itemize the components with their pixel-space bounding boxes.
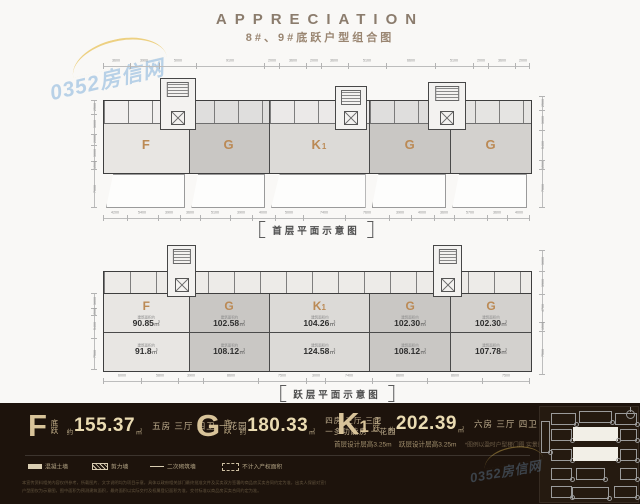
dimension-segment: 4200	[103, 212, 127, 222]
dimension-segment: 7500	[482, 375, 530, 385]
area-upper: 104.26㎡	[270, 319, 370, 330]
area-upper: 102.30㎡	[370, 319, 450, 330]
dimension-label: 4700	[541, 304, 545, 312]
area-note: 建筑面积约	[209, 345, 248, 348]
dimension-segment: 3000	[306, 375, 325, 385]
dimension-label: 3900	[541, 279, 545, 287]
dimension-segment: 7500	[536, 331, 546, 375]
dimension-segment: 5800	[141, 375, 178, 385]
plan2-unit-g1: G 建筑面积约 102.58㎡ 建筑面积约 108.12㎡	[189, 294, 269, 371]
legend-label: 剪力墙	[111, 463, 128, 471]
wall-legend: 混凝土墙 剪力墙 二次砌筑墙 不计入产权面积	[28, 461, 298, 472]
plan1-ruler-top: 3600390050009100200036002000360051006600…	[103, 60, 530, 70]
dimension-label: 2000	[519, 58, 527, 62]
dimension-segment: 5100	[200, 212, 229, 222]
dimension-segment: 6600	[386, 60, 435, 70]
area-note: 建筑面积约	[390, 345, 430, 348]
dimension-segment: 4700	[536, 294, 546, 322]
dimension-segment: 3900	[389, 212, 411, 222]
dimension-segment: 8600	[427, 375, 482, 385]
dimension-segment: 5400	[536, 130, 546, 160]
dimension-segment: 2000	[264, 60, 279, 70]
site-keyplan	[539, 406, 639, 503]
plan2-stair-core-1	[167, 245, 196, 297]
dimension-label: 3600	[541, 116, 545, 124]
terrace	[372, 174, 447, 208]
dimension-segment: 1500	[536, 322, 546, 331]
elevator-icon	[344, 111, 358, 125]
unit-label: F	[142, 137, 151, 152]
keyplan-building	[620, 449, 637, 461]
keyplan-highlighted-building	[573, 427, 618, 441]
area-lower: 91.8㎡	[104, 347, 189, 358]
dimension-segment: 3900	[130, 60, 159, 70]
floor-height-note: 首层设计层高3.25m 跃层设计层高3.25m *图例以盈时户型楼门图 实景量为…	[334, 440, 555, 449]
dimension-segment: 7000	[88, 169, 98, 208]
dimension-label: 2500	[93, 103, 97, 111]
dimension-segment: 3600	[88, 114, 98, 134]
dimension-label: 5100	[363, 58, 371, 62]
dimension-label: 3600	[498, 58, 506, 62]
dimension-segment: 9100	[196, 60, 264, 70]
dimension-label: 5100	[211, 210, 219, 214]
area-note: 建筑面积约	[390, 317, 430, 320]
dimension-label: 5400	[138, 210, 146, 214]
unit-label: G	[485, 137, 496, 152]
loft-floor-height: 跃层设计层高3.25m	[399, 441, 457, 448]
dimension-label: 7500	[93, 350, 97, 358]
dimension-segment: 6000	[103, 375, 141, 385]
plan1-terrace-row	[103, 173, 530, 209]
area-note: 建筑面积约	[294, 317, 344, 320]
dimension-label: 2000	[477, 58, 485, 62]
area-note: 建筑面积约	[471, 345, 511, 348]
keyplan-building	[551, 429, 572, 441]
disclaimer-line-1: 本宣传资料相关内容仅供参考，所载图片、文字说明均为项目示意，具体以政府相关部门最…	[22, 480, 326, 486]
dimension-label: 3600	[541, 257, 545, 265]
area-lower: 107.78㎡	[451, 347, 531, 358]
area-upper: 102.58㎡	[190, 319, 269, 330]
dimension-label: 6000	[118, 373, 126, 377]
plan2-unit-f: F 建筑面积约 90.85㎡ 建筑面积约 91.8㎡	[104, 294, 189, 371]
unit-label-sub: 1	[322, 142, 327, 151]
dimension-segment: 3600	[279, 60, 306, 70]
dimension-label: 7000	[541, 184, 545, 192]
stair-icon	[341, 90, 361, 105]
disclaimer-line-2: 户型图仅为示意图，图中面积为预测建筑面积，最终面积以实际交付及权属登记面积为准，…	[22, 488, 326, 494]
unit-tier: 底跃	[223, 419, 231, 434]
plan1-caption-text: 首层平面示意图	[272, 223, 360, 237]
legend-label: 不计入产权面积	[242, 463, 282, 471]
unit-label: G	[224, 299, 233, 313]
dimension-label: 3600	[93, 120, 97, 128]
dimension-label: 1500	[541, 161, 545, 169]
floor-divider	[370, 332, 450, 333]
page-title: APPRECIATION	[0, 11, 640, 28]
dimension-segment: 2500	[88, 100, 98, 114]
floor-divider	[190, 332, 269, 333]
dimension-segment: 8600	[372, 375, 427, 385]
first-floor-height: 首层设计层高3.25m	[334, 441, 392, 448]
dimension-segment: 5700	[454, 212, 487, 222]
dimension-segment: 1500	[536, 160, 546, 168]
dimension-segment: 3900	[230, 212, 252, 222]
watermark-text: 0352房信网	[47, 50, 173, 107]
legend-item-nonproperty: 不计入产权面积	[222, 461, 298, 472]
dimension-label: 3900	[140, 58, 148, 62]
plan1-stair-core-1	[160, 78, 196, 130]
unit-letter: G	[196, 411, 220, 441]
dimension-label: 3900	[187, 373, 195, 377]
approx-label: 约	[67, 428, 73, 440]
area-lower: 124.58㎡	[270, 347, 370, 358]
dimension-segment: 5400	[127, 212, 158, 222]
unit-tier: 底跃	[372, 417, 380, 432]
dimension-label: 3900	[396, 210, 404, 214]
area-note: 建筑面积约	[125, 345, 167, 348]
dimension-label: 3600	[330, 58, 338, 62]
line-wall-icon	[150, 466, 164, 467]
legend-label: 二次砌筑墙	[167, 463, 196, 471]
dimension-segment: 3600	[488, 60, 515, 70]
keyplan-building	[576, 468, 605, 480]
footer-divider	[25, 455, 530, 456]
stair-icon	[435, 86, 459, 101]
dimension-label: 5700	[466, 210, 474, 214]
plan2-unit-k1: K1 建筑面积约 104.26㎡ 建筑面积约 124.58㎡	[269, 294, 370, 371]
dimension-label: 2000	[268, 58, 276, 62]
dimension-segment: 3900	[536, 271, 546, 294]
dimension-segment: 3900	[178, 375, 203, 385]
hatch-wall-icon	[92, 463, 108, 470]
page: APPRECIATION 8#、9#底跃户型组合图 0352房信网 360039…	[0, 0, 640, 504]
plan2-ruler-right: 36003900470015007500	[536, 250, 546, 375]
dimension-segment: 5000	[159, 60, 196, 70]
dimension-label: 5000	[285, 210, 293, 214]
dimension-segment: 5400	[88, 315, 98, 338]
dimension-label: 5800	[156, 373, 164, 377]
dimension-segment: 3600	[487, 212, 508, 222]
keyplan-highlighted-building	[573, 447, 618, 461]
dimension-segment: 4000	[507, 212, 530, 222]
unit-label-sub: 1	[321, 303, 325, 312]
unit-area-sqm: ㎡	[136, 428, 142, 440]
dimension-label: 5000	[174, 58, 182, 62]
approx-label: 约	[240, 428, 246, 440]
dimension-segment: 3000	[88, 145, 98, 162]
dimension-segment: 7500	[258, 375, 306, 385]
dimension-label: 3000	[312, 373, 320, 377]
area-note: 建筑面积约	[209, 317, 248, 320]
dimension-label: 4000	[515, 210, 523, 214]
plan2-ruler-left: 3600150054007500	[88, 293, 98, 370]
solid-wall-icon	[28, 464, 42, 469]
footer-unit-k1: K 1 底跃 约 202.39 ㎡ 六房 三厅 四卫 一花园	[337, 409, 570, 439]
dimension-label: 2000	[310, 58, 318, 62]
unit-area: 180.33	[247, 415, 308, 437]
legend-item-shear: 剪力墙	[92, 461, 135, 472]
dimension-segment: 7000	[536, 169, 546, 208]
dimension-label: 3600	[112, 58, 120, 62]
dimension-label: 7600	[363, 210, 371, 214]
floor-divider	[451, 332, 531, 333]
area-note: 建筑面积约	[471, 317, 511, 320]
keyplan-building	[551, 486, 572, 498]
plan1-unit-g1: G	[189, 101, 269, 173]
dimension-segment: 3600	[536, 110, 546, 130]
keyplan-building	[551, 468, 572, 480]
stair-icon	[167, 82, 189, 97]
plan2-unit-g3: G 建筑面积约 102.30㎡ 建筑面积约 107.78㎡	[450, 294, 531, 371]
dimension-label: 1500	[93, 161, 97, 169]
unit-label: G	[486, 299, 495, 313]
unit-label: G	[224, 137, 235, 152]
area-lower: 108.12㎡	[190, 347, 269, 358]
plan1-stair-core-2	[335, 86, 367, 130]
dimension-label: 7000	[93, 185, 97, 193]
unit-label: G	[405, 137, 416, 152]
dimension-segment: 8600	[203, 375, 258, 385]
elevator-icon	[175, 278, 189, 292]
terrace	[452, 174, 527, 208]
unit-area-sqm: ㎡	[309, 428, 315, 440]
dimension-segment: 4000	[411, 212, 434, 222]
dimension-label: 2500	[541, 99, 545, 107]
dimension-label: 7500	[278, 373, 286, 377]
unit-letter: K	[337, 409, 359, 439]
unit-label: G	[405, 299, 414, 313]
dimension-segment: 7500	[88, 338, 98, 370]
plan1-ruler-left: 250036002000300015007000	[88, 100, 98, 208]
dimension-label: 3600	[289, 58, 297, 62]
dimension-segment: 3900	[158, 212, 180, 222]
dimension-label: 4000	[259, 210, 267, 214]
unit-tier: 底跃	[50, 419, 58, 434]
dimension-label: 3600	[493, 210, 501, 214]
dimension-label: 5400	[93, 322, 97, 330]
unit-area: 202.39	[396, 413, 457, 435]
stair-icon	[438, 249, 456, 264]
keyplan-building	[541, 421, 550, 453]
area-note: 建筑面积约	[125, 317, 167, 320]
terrace	[106, 174, 185, 208]
keyplan-building	[614, 486, 637, 498]
dimension-segment: 2500	[536, 96, 546, 110]
dimension-label: 3900	[237, 210, 245, 214]
elevator-icon	[171, 111, 185, 125]
dimension-label: 7400	[320, 210, 328, 214]
keyplan-building	[551, 413, 576, 425]
dimension-label: 7500	[502, 373, 510, 377]
dimension-segment: 5100	[348, 60, 386, 70]
dimension-segment: 3600	[536, 250, 546, 271]
elevator-icon	[440, 111, 454, 125]
stair-icon	[172, 249, 190, 264]
dimension-label: 6600	[407, 58, 415, 62]
dimension-label: 3600	[186, 210, 194, 214]
dimension-label: 7400	[345, 373, 353, 377]
plan1-stair-core-3	[428, 82, 466, 130]
keyplan-building	[620, 429, 637, 441]
plan2-ruler-bottom: 6000580039008600750030007400860086007500	[103, 375, 530, 385]
unit-label: K	[311, 137, 321, 152]
dimension-label: 8600	[227, 373, 235, 377]
unit-label: F	[143, 299, 150, 313]
terrace	[271, 174, 366, 208]
unit-letter: F	[28, 411, 47, 441]
dimension-segment: 2000	[473, 60, 488, 70]
unit-letter-sub: 1	[359, 417, 368, 437]
legend-label: 混凝土墙	[45, 463, 68, 471]
dimension-label: 5400	[541, 141, 545, 149]
keyplan-building	[551, 449, 572, 461]
dimension-label: 3600	[440, 210, 448, 214]
area-upper: 102.30㎡	[451, 319, 531, 330]
dimension-segment: 3600	[103, 60, 130, 70]
elevator-icon	[441, 278, 455, 292]
plan2-caption-text: 跃层平面示意图	[293, 387, 381, 401]
dimension-label: 5100	[450, 58, 458, 62]
plan2-unit-g2: G 建筑面积约 102.30㎡ 建筑面积约 108.12㎡	[369, 294, 450, 371]
dimension-label: 4200	[111, 210, 119, 214]
dashed-area-icon	[222, 463, 239, 471]
dimension-segment: 7400	[325, 375, 372, 385]
unit-area: 155.37	[74, 415, 135, 437]
area-note: 建筑面积约	[294, 345, 344, 348]
plan2-caption: 跃层平面示意图	[280, 385, 394, 402]
approx-label: 约	[389, 426, 395, 438]
dimension-segment: 2000	[515, 60, 530, 70]
dimension-label: 8600	[396, 373, 404, 377]
dimension-label: 2000	[93, 135, 97, 143]
dimension-label: 7500	[541, 349, 545, 357]
plan1-caption: 首层平面示意图	[259, 221, 373, 238]
floor-divider	[104, 332, 189, 333]
dimension-label: 9100	[226, 58, 234, 62]
dimension-segment: 1500	[88, 161, 98, 169]
unit-area-sqm: ㎡	[458, 426, 464, 438]
dimension-segment: 2000	[88, 134, 98, 145]
legend-item-secondary: 二次砌筑墙	[150, 461, 207, 472]
dimension-label: 8600	[451, 373, 459, 377]
dimension-label: 3000	[93, 149, 97, 157]
keyplan-building	[579, 411, 612, 423]
dimension-segment: 3600	[321, 60, 348, 70]
keyplan-building	[572, 487, 609, 499]
plan2-building-band: F 建筑面积约 90.85㎡ 建筑面积约 91.8㎡ G 建筑面积约 102.5…	[103, 293, 532, 372]
keyplan-building	[615, 413, 637, 425]
dimension-label: 1500	[541, 322, 545, 330]
dimension-segment: 5100	[435, 60, 473, 70]
keyplan-building	[620, 468, 637, 480]
legend-item-concrete: 混凝土墙	[28, 461, 77, 472]
terrace	[191, 174, 265, 208]
footer-bar: F 底跃 约 155.37 ㎡ 五房 三厅 四卫 一花园 G 底跃 约 180.…	[0, 403, 640, 504]
area-upper: 90.85㎡	[104, 319, 189, 330]
plan2-stair-core-2	[433, 245, 462, 297]
dimension-label: 3900	[165, 210, 173, 214]
dimension-segment: 3600	[180, 212, 201, 222]
dimension-segment: 3600	[88, 293, 98, 308]
dimension-segment: 3600	[434, 212, 455, 222]
dimension-label: 4000	[418, 210, 426, 214]
dimension-label: 3600	[93, 297, 97, 305]
area-lower: 108.12㎡	[370, 347, 450, 358]
dimension-segment: 2000	[306, 60, 321, 70]
page-subtitle: 8#、9#底跃户型组合图	[0, 29, 640, 45]
plan1-ruler-right: 25003600540015007000	[536, 96, 546, 208]
floor-divider	[270, 332, 370, 333]
